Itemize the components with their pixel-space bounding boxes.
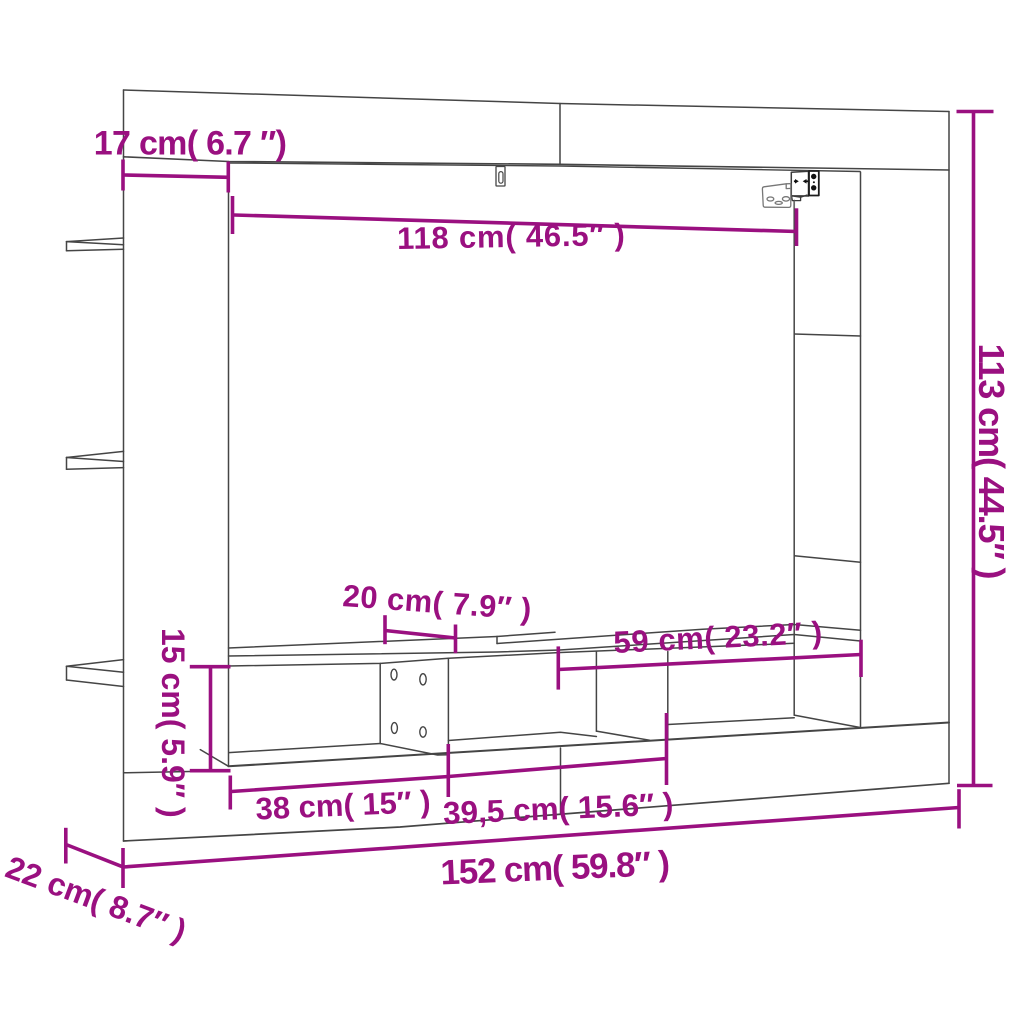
svg-text:113 cm( 44.5″ ): 113 cm( 44.5″ ): [971, 344, 1012, 579]
svg-text:17 cm( 6.7 ″): 17 cm( 6.7 ″): [94, 125, 286, 163]
svg-text:15 cm( 5.9″ ): 15 cm( 5.9″ ): [155, 628, 191, 818]
svg-text:118 cm( 46.5″ ): 118 cm( 46.5″ ): [397, 217, 626, 256]
